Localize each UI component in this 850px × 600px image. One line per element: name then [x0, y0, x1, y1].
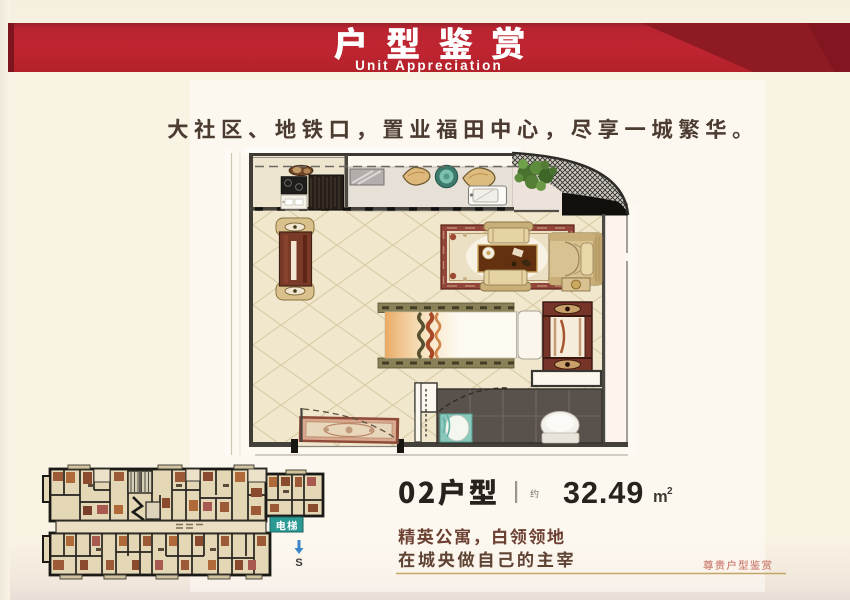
svg-text:32.49: 32.49 — [563, 476, 644, 510]
svg-text:m: m — [653, 488, 668, 506]
svg-text:2: 2 — [667, 486, 673, 497]
